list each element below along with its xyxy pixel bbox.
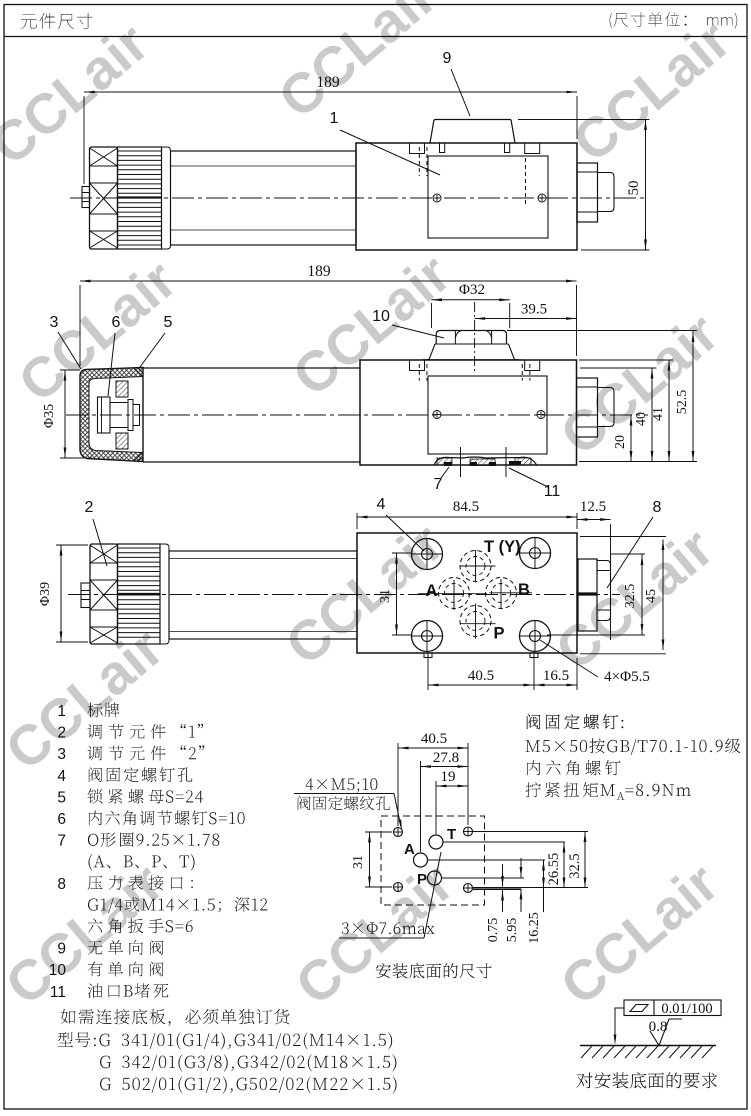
svg-text:6: 6 — [112, 314, 121, 331]
svg-text:5: 5 — [164, 314, 173, 331]
svg-text:Φ35: Φ35 — [42, 404, 57, 428]
svg-text:189: 189 — [316, 74, 340, 91]
svg-text:16.5: 16.5 — [543, 668, 569, 684]
svg-text:9: 9 — [57, 941, 66, 958]
svg-text:A: A — [404, 841, 415, 858]
svg-text:4: 4 — [377, 496, 386, 513]
svg-text:10: 10 — [49, 962, 67, 979]
svg-text:32.5: 32.5 — [623, 584, 638, 609]
svg-text:39.5: 39.5 — [521, 302, 547, 318]
svg-text:0.01/100: 0.01/100 — [661, 1001, 712, 1017]
svg-text:9: 9 — [443, 50, 452, 67]
svg-text:3: 3 — [50, 314, 59, 331]
svg-text:40.5: 40.5 — [421, 731, 447, 747]
svg-text:31: 31 — [351, 855, 366, 869]
svg-text:P: P — [417, 871, 427, 888]
svg-text:5.95: 5.95 — [505, 918, 520, 943]
svg-text:2: 2 — [57, 725, 66, 742]
svg-text:11: 11 — [544, 483, 561, 500]
svg-text:8: 8 — [653, 499, 662, 516]
svg-text:8: 8 — [57, 876, 66, 893]
svg-text:0.75: 0.75 — [486, 918, 501, 943]
svg-text:52.5: 52.5 — [675, 390, 690, 415]
svg-text:T: T — [447, 826, 456, 843]
svg-text:4: 4 — [57, 768, 66, 785]
svg-text:Φ32: Φ32 — [459, 282, 485, 298]
svg-text:45: 45 — [644, 589, 659, 603]
svg-text:16.25: 16.25 — [527, 912, 542, 944]
svg-text:B: B — [518, 581, 530, 599]
svg-text:P: P — [494, 625, 505, 643]
svg-text:27.8: 27.8 — [433, 750, 459, 766]
svg-text:Φ39: Φ39 — [38, 582, 53, 606]
svg-text:1: 1 — [57, 703, 66, 720]
svg-text:2: 2 — [85, 499, 94, 516]
svg-text:26.55: 26.55 — [546, 853, 562, 886]
svg-text:3: 3 — [57, 746, 66, 763]
svg-text:50: 50 — [626, 181, 642, 196]
svg-text:12.5: 12.5 — [580, 499, 606, 515]
svg-text:31: 31 — [378, 589, 393, 603]
svg-text:1: 1 — [330, 110, 339, 127]
svg-text:189: 189 — [307, 263, 331, 280]
svg-text:40: 40 — [634, 412, 649, 426]
svg-text:41: 41 — [651, 407, 666, 421]
svg-text:84.5: 84.5 — [453, 499, 479, 515]
svg-text:19: 19 — [441, 769, 456, 785]
svg-text:7: 7 — [57, 833, 66, 850]
svg-text:32.5: 32.5 — [567, 853, 583, 878]
svg-text:5: 5 — [57, 789, 66, 806]
svg-text:11: 11 — [50, 984, 66, 1001]
svg-text:6: 6 — [57, 811, 66, 828]
svg-text:7: 7 — [434, 476, 443, 493]
svg-text:T (Y): T (Y) — [484, 538, 521, 556]
svg-text:A: A — [426, 582, 438, 600]
svg-text:10: 10 — [372, 308, 390, 325]
svg-text:20: 20 — [613, 435, 628, 449]
svg-text:40.5: 40.5 — [468, 668, 494, 684]
svg-text:4×Φ5.5: 4×Φ5.5 — [604, 669, 650, 685]
